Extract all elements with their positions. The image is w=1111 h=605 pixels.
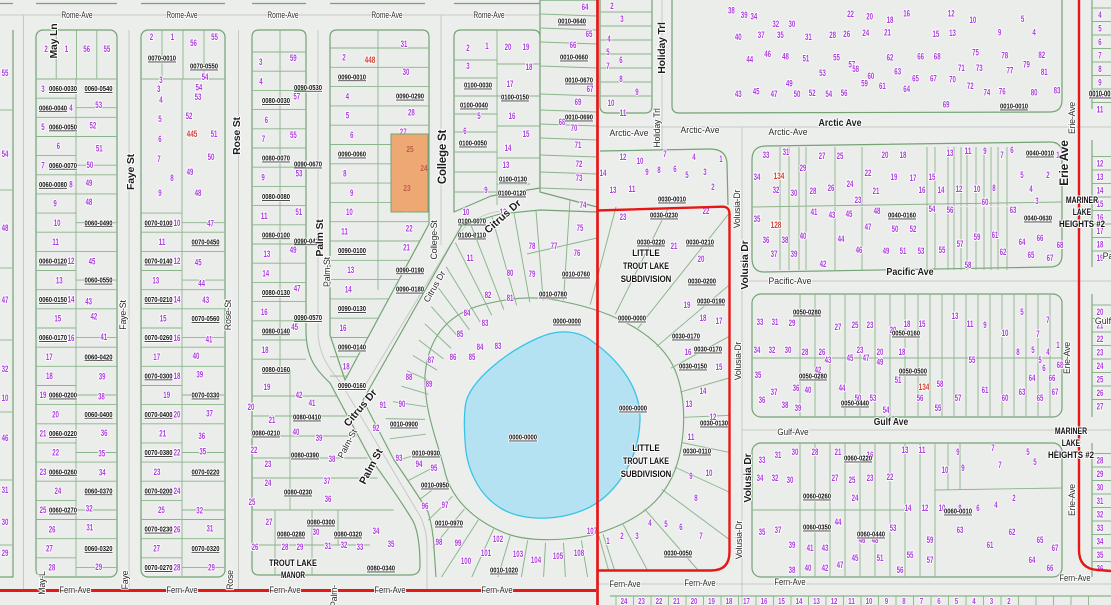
svg-text:14: 14 [174, 295, 181, 305]
svg-text:8: 8 [992, 183, 995, 193]
svg-text:81: 81 [1041, 67, 1048, 77]
svg-text:24: 24 [265, 478, 272, 488]
svg-text:4: 4 [1046, 347, 1049, 357]
svg-text:100: 100 [461, 556, 471, 566]
svg-text:23: 23 [154, 467, 161, 477]
svg-text:19: 19 [891, 172, 898, 182]
svg-text:2: 2 [342, 53, 345, 63]
svg-text:9: 9 [1098, 78, 1101, 88]
svg-text:0070-0320: 0070-0320 [192, 544, 220, 553]
svg-text:0060-0400: 0060-0400 [85, 410, 113, 419]
svg-text:25: 25 [249, 497, 256, 507]
svg-text:Faye: Faye [120, 570, 130, 589]
svg-text:35: 35 [1097, 550, 1104, 560]
svg-text:13: 13 [686, 399, 693, 409]
svg-text:7: 7 [991, 443, 994, 453]
svg-text:45: 45 [753, 86, 760, 96]
svg-text:0050-0280: 0050-0280 [799, 372, 827, 381]
svg-text:0030-0050: 0030-0050 [664, 549, 692, 558]
svg-text:62: 62 [1000, 247, 1007, 257]
svg-text:76: 76 [999, 86, 1006, 96]
svg-text:0080-0230: 0080-0230 [284, 488, 312, 497]
svg-text:48: 48 [782, 52, 789, 62]
svg-text:24: 24 [55, 486, 62, 496]
svg-text:0100-0110: 0100-0110 [458, 231, 486, 240]
svg-text:42: 42 [91, 312, 98, 322]
svg-text:21: 21 [673, 597, 680, 605]
svg-text:0080-0140: 0080-0140 [262, 326, 290, 335]
svg-text:0090-0160: 0090-0160 [338, 381, 366, 390]
svg-text:10: 10 [974, 184, 981, 194]
svg-text:48: 48 [86, 197, 93, 207]
svg-text:0080-0130: 0080-0130 [262, 288, 290, 297]
svg-text:9: 9 [983, 320, 986, 330]
svg-text:66: 66 [1049, 373, 1056, 383]
svg-text:34: 34 [99, 467, 106, 477]
svg-text:36: 36 [793, 383, 800, 393]
svg-text:0010-0950: 0010-0950 [421, 481, 449, 490]
svg-text:8: 8 [69, 180, 72, 190]
svg-text:10: 10 [706, 468, 713, 478]
svg-text:50: 50 [794, 89, 801, 99]
svg-text:SUBDIVISION: SUBDIVISION [621, 469, 672, 479]
svg-text:19: 19 [523, 42, 530, 52]
svg-text:Fern-Ave: Fern-Ave [774, 577, 805, 587]
svg-text:3: 3 [259, 57, 262, 67]
svg-text:5: 5 [1026, 447, 1029, 457]
svg-text:12: 12 [68, 256, 75, 266]
svg-text:LITTLE: LITTLE [632, 443, 660, 453]
svg-text:Fern-Ave: Fern-Ave [166, 585, 197, 595]
svg-text:Arctic-Ave: Arctic-Ave [610, 128, 649, 138]
svg-text:34: 34 [757, 473, 764, 483]
svg-text:89: 89 [426, 379, 433, 389]
svg-text:2: 2 [610, 1, 613, 11]
svg-text:36: 36 [198, 431, 205, 441]
svg-text:13: 13 [813, 597, 820, 605]
svg-text:18: 18 [726, 597, 733, 605]
svg-text:Fern-Ave: Fern-Ave [609, 579, 640, 589]
svg-text:2: 2 [466, 43, 469, 53]
svg-text:90: 90 [399, 399, 406, 409]
svg-text:39: 39 [795, 403, 802, 413]
svg-text:20: 20 [505, 42, 512, 52]
svg-text:43: 43 [829, 210, 836, 220]
svg-text:0060-0260: 0060-0260 [49, 467, 77, 476]
svg-text:0000-0000: 0000-0000 [618, 314, 646, 323]
svg-text:0040-0630: 0040-0630 [1024, 214, 1052, 223]
svg-text:0060-0550: 0060-0550 [85, 276, 113, 285]
svg-text:14: 14 [796, 597, 803, 605]
svg-text:TROUT LAKE: TROUT LAKE [623, 261, 669, 271]
svg-text:44: 44 [838, 234, 845, 244]
svg-text:51: 51 [895, 375, 902, 385]
svg-text:57: 57 [927, 555, 934, 565]
svg-text:23: 23 [867, 473, 874, 483]
svg-text:57: 57 [293, 92, 300, 102]
svg-text:37: 37 [775, 525, 782, 535]
svg-text:9: 9 [956, 447, 959, 457]
svg-text:13: 13 [610, 185, 617, 195]
svg-text:32: 32 [772, 473, 779, 483]
svg-text:64: 64 [1019, 237, 1026, 247]
svg-text:0060-0440: 0060-0440 [857, 530, 885, 539]
svg-text:31: 31 [775, 450, 782, 460]
svg-text:12: 12 [831, 597, 838, 605]
svg-text:102: 102 [493, 534, 503, 544]
svg-text:5: 5 [1038, 355, 1041, 365]
svg-text:72: 72 [576, 159, 583, 169]
svg-text:23: 23 [40, 467, 47, 477]
svg-text:0060-0270: 0060-0270 [49, 506, 77, 515]
svg-text:Rome-Ave: Rome-Ave [473, 10, 504, 20]
svg-text:55: 55 [104, 44, 111, 54]
svg-text:32: 32 [86, 504, 93, 514]
svg-text:87: 87 [428, 355, 435, 365]
svg-text:4: 4 [1029, 184, 1032, 194]
svg-text:12: 12 [948, 8, 955, 18]
svg-text:67: 67 [1052, 387, 1059, 397]
svg-text:6: 6 [1042, 363, 1045, 373]
svg-text:6: 6 [265, 115, 268, 125]
svg-text:28: 28 [812, 447, 819, 457]
svg-text:53: 53 [918, 246, 925, 256]
svg-text:9: 9 [261, 172, 264, 182]
svg-text:31: 31 [325, 541, 332, 551]
svg-text:7: 7 [1098, 51, 1101, 61]
svg-text:9: 9 [885, 597, 889, 605]
svg-text:64: 64 [582, 2, 589, 12]
svg-text:4: 4 [972, 597, 976, 605]
svg-text:16: 16 [919, 185, 926, 195]
svg-text:34: 34 [754, 345, 761, 355]
svg-text:55: 55 [935, 403, 942, 413]
svg-text:4: 4 [1032, 28, 1035, 38]
svg-text:53: 53 [296, 168, 303, 178]
svg-text:5: 5 [955, 597, 959, 605]
svg-text:39: 39 [196, 369, 203, 379]
svg-text:16: 16 [903, 8, 910, 18]
svg-text:Rome-Ave: Rome-Ave [267, 10, 298, 20]
svg-text:80: 80 [507, 268, 514, 278]
svg-text:51: 51 [803, 54, 810, 64]
svg-text:3: 3 [1035, 196, 1038, 206]
svg-text:5: 5 [158, 114, 161, 124]
svg-text:25: 25 [158, 505, 165, 515]
svg-text:32: 32 [341, 540, 348, 550]
svg-text:30: 30 [2, 517, 9, 527]
svg-text:10: 10 [2, 393, 9, 403]
svg-text:72: 72 [967, 81, 974, 91]
svg-text:HEIGHTS #2: HEIGHTS #2 [1059, 219, 1105, 229]
svg-text:57: 57 [957, 239, 964, 249]
svg-text:29: 29 [2, 548, 9, 558]
svg-text:56: 56 [841, 88, 848, 98]
svg-text:16: 16 [68, 333, 75, 343]
svg-text:0080-0320: 0080-0320 [334, 530, 362, 539]
svg-text:81: 81 [507, 293, 514, 303]
svg-text:0080-0410: 0080-0410 [293, 413, 321, 422]
svg-text:63: 63 [894, 67, 901, 77]
svg-text:53: 53 [195, 92, 202, 102]
svg-text:53: 53 [890, 523, 897, 533]
svg-text:15: 15 [716, 362, 723, 372]
svg-text:2: 2 [711, 182, 714, 192]
svg-text:19: 19 [708, 597, 715, 605]
svg-text:24: 24 [420, 163, 427, 173]
svg-text:0060-0220: 0060-0220 [49, 429, 77, 438]
svg-text:55: 55 [290, 130, 297, 140]
svg-text:18: 18 [887, 15, 894, 25]
svg-text:84: 84 [464, 308, 471, 318]
svg-text:18: 18 [899, 347, 906, 357]
svg-text:11: 11 [620, 108, 627, 118]
svg-text:21: 21 [269, 415, 276, 425]
svg-text:40: 40 [800, 231, 807, 241]
svg-text:0070-0260: 0070-0260 [145, 333, 173, 342]
svg-text:46: 46 [2, 433, 9, 443]
svg-text:34: 34 [754, 172, 761, 182]
svg-text:32: 32 [2, 364, 9, 374]
svg-text:7: 7 [41, 160, 44, 170]
svg-text:44: 44 [835, 517, 842, 527]
svg-text:21: 21 [884, 28, 891, 38]
svg-text:78: 78 [1001, 51, 1008, 61]
svg-text:80: 80 [1031, 87, 1038, 97]
svg-text:448: 448 [365, 55, 376, 65]
svg-text:11: 11 [159, 237, 166, 247]
svg-text:8: 8 [1016, 347, 1019, 357]
svg-text:24: 24 [174, 486, 181, 496]
svg-text:14: 14 [345, 284, 352, 294]
svg-text:24: 24 [862, 28, 869, 38]
svg-text:Volusia Dr: Volusia Dr [742, 453, 754, 502]
svg-text:7: 7 [1000, 150, 1003, 160]
svg-text:36: 36 [1097, 564, 1104, 574]
svg-text:31: 31 [1097, 496, 1104, 506]
svg-text:15: 15 [778, 597, 785, 605]
svg-text:68: 68 [934, 52, 941, 62]
svg-text:15: 15 [929, 172, 936, 182]
svg-text:54: 54 [196, 82, 203, 92]
svg-text:51: 51 [900, 246, 907, 256]
svg-text:47: 47 [207, 219, 214, 229]
svg-text:51: 51 [96, 144, 103, 154]
svg-text:11: 11 [848, 597, 855, 605]
svg-text:25: 25 [1097, 375, 1104, 385]
svg-text:0070-0230: 0070-0230 [145, 525, 173, 534]
svg-text:10: 10 [54, 218, 61, 228]
svg-text:Rome-Ave: Rome-Ave [61, 10, 92, 20]
svg-text:4: 4 [648, 518, 651, 528]
svg-text:7: 7 [1036, 329, 1039, 339]
svg-text:101: 101 [481, 548, 491, 558]
svg-text:103: 103 [513, 549, 523, 559]
svg-text:47: 47 [294, 284, 301, 294]
svg-text:51: 51 [877, 553, 884, 563]
svg-text:0040-0160: 0040-0160 [888, 211, 916, 220]
svg-text:0080-0160: 0080-0160 [262, 365, 290, 374]
svg-text:23: 23 [620, 212, 627, 222]
svg-text:0070-0010: 0070-0010 [148, 54, 176, 63]
svg-text:49: 49 [187, 167, 194, 177]
svg-text:49: 49 [786, 79, 793, 89]
svg-text:55: 55 [833, 53, 840, 63]
svg-text:0030-0170: 0030-0170 [694, 345, 722, 354]
svg-text:107: 107 [587, 526, 597, 536]
svg-text:22: 22 [1097, 334, 1104, 344]
svg-text:23: 23 [638, 597, 645, 605]
svg-text:0040-0010: 0040-0010 [1026, 149, 1054, 158]
svg-text:May Ln: May Ln [48, 24, 60, 59]
svg-text:60: 60 [1002, 393, 1009, 403]
svg-text:28: 28 [1097, 456, 1104, 466]
svg-text:83: 83 [1054, 85, 1061, 95]
svg-text:45: 45 [291, 322, 298, 332]
svg-text:24: 24 [1097, 361, 1104, 371]
svg-text:0070-0270: 0070-0270 [145, 563, 173, 572]
svg-text:104: 104 [531, 555, 541, 565]
svg-text:8: 8 [343, 169, 346, 179]
svg-text:0080-0030: 0080-0030 [262, 96, 290, 105]
svg-text:69: 69 [575, 97, 582, 107]
svg-text:Rome-Ave: Rome-Ave [371, 10, 402, 20]
svg-text:445: 445 [187, 129, 198, 139]
svg-text:43: 43 [85, 296, 92, 306]
svg-text:Volusia-Dr: Volusia-Dr [733, 341, 743, 380]
svg-text:6: 6 [57, 141, 60, 151]
svg-text:0010-0010: 0010-0010 [1089, 90, 1111, 99]
svg-text:85: 85 [469, 352, 476, 362]
svg-text:43: 43 [825, 355, 832, 365]
svg-text:28: 28 [282, 542, 289, 552]
svg-text:Volusia-Dr: Volusia-Dr [732, 189, 742, 228]
svg-text:4: 4 [159, 95, 162, 105]
svg-text:24: 24 [621, 597, 628, 605]
svg-text:31: 31 [86, 523, 93, 533]
svg-text:Rose: Rose [225, 570, 235, 590]
svg-text:27: 27 [46, 544, 53, 554]
svg-text:LAKE: LAKE [1073, 207, 1091, 217]
svg-text:38: 38 [782, 400, 789, 410]
svg-text:28: 28 [408, 108, 415, 118]
svg-text:51: 51 [295, 207, 302, 217]
svg-text:0000-0000: 0000-0000 [553, 317, 581, 326]
svg-text:31: 31 [783, 147, 790, 157]
svg-text:Fern-Ave: Fern-Ave [481, 585, 512, 595]
svg-text:0060-0200: 0060-0200 [49, 391, 77, 400]
svg-text:33: 33 [757, 317, 764, 327]
svg-text:26: 26 [828, 183, 835, 193]
svg-text:17: 17 [153, 352, 160, 362]
svg-text:4: 4 [692, 152, 695, 162]
svg-text:0070-0550: 0070-0550 [190, 62, 218, 71]
svg-text:0000-0000: 0000-0000 [619, 404, 647, 413]
svg-text:0100-0040: 0100-0040 [460, 101, 488, 110]
svg-text:134: 134 [774, 171, 785, 181]
svg-text:28: 28 [802, 347, 809, 357]
svg-text:0060-0490: 0060-0490 [85, 218, 113, 227]
svg-text:56: 56 [83, 44, 90, 54]
svg-text:HEIGHTS #2: HEIGHTS #2 [1048, 450, 1094, 460]
svg-text:13: 13 [264, 249, 271, 259]
svg-text:11: 11 [261, 211, 268, 221]
svg-text:1: 1 [171, 32, 174, 42]
svg-text:0060-0350: 0060-0350 [803, 523, 831, 532]
svg-text:10: 10 [970, 15, 977, 25]
svg-text:Rose St: Rose St [231, 116, 243, 154]
svg-text:22: 22 [887, 472, 894, 482]
svg-text:54: 54 [883, 405, 890, 415]
svg-text:2: 2 [1007, 597, 1011, 605]
svg-text:0060-0420: 0060-0420 [85, 352, 113, 361]
svg-text:10: 10 [637, 156, 644, 166]
svg-text:37: 37 [206, 408, 213, 418]
svg-text:45: 45 [847, 353, 854, 363]
svg-text:7: 7 [606, 61, 609, 71]
svg-text:Fern-Ave: Fern-Ave [1059, 573, 1090, 583]
svg-text:6: 6 [619, 55, 622, 65]
svg-text:Arctic-Ave: Arctic-Ave [681, 125, 720, 135]
svg-text:39: 39 [789, 540, 796, 550]
svg-text:41: 41 [100, 332, 107, 342]
svg-text:5: 5 [1033, 457, 1036, 467]
svg-text:5: 5 [1020, 307, 1023, 317]
svg-text:99: 99 [455, 538, 462, 548]
svg-text:65: 65 [1037, 535, 1044, 545]
svg-text:86: 86 [450, 352, 457, 362]
svg-text:16: 16 [174, 333, 181, 343]
svg-text:0060-0370: 0060-0370 [85, 486, 113, 495]
svg-text:0070-0100: 0070-0100 [145, 218, 173, 227]
svg-text:14: 14 [505, 143, 512, 153]
svg-text:5: 5 [1098, 24, 1101, 34]
svg-text:College St: College St [437, 130, 449, 185]
svg-text:45: 45 [846, 209, 853, 219]
svg-text:0070-0330: 0070-0330 [192, 391, 220, 400]
svg-text:10: 10 [174, 218, 181, 228]
svg-text:42: 42 [820, 259, 827, 269]
svg-text:Gulf-Ave: Gulf-Ave [777, 427, 808, 437]
svg-text:68: 68 [1057, 240, 1064, 250]
svg-text:0060-0120: 0060-0120 [39, 257, 67, 266]
svg-text:14: 14 [905, 503, 912, 513]
svg-text:0010-0760: 0010-0760 [562, 270, 590, 279]
svg-text:31: 31 [2, 485, 9, 495]
svg-text:41: 41 [206, 334, 213, 344]
svg-text:128: 128 [771, 220, 782, 230]
svg-text:53: 53 [95, 100, 102, 110]
svg-text:TROUT LAKE: TROUT LAKE [623, 456, 669, 466]
svg-text:21: 21 [159, 429, 166, 439]
svg-text:LAKE: LAKE [1062, 438, 1080, 448]
svg-text:LITTLE: LITTLE [632, 248, 660, 258]
svg-text:55: 55 [907, 550, 914, 560]
svg-text:83: 83 [495, 341, 502, 351]
svg-text:10: 10 [608, 98, 615, 108]
svg-text:66: 66 [1047, 563, 1054, 573]
svg-text:47: 47 [865, 222, 872, 232]
svg-text:3: 3 [635, 531, 638, 541]
svg-text:7: 7 [699, 531, 702, 541]
svg-text:36: 36 [101, 428, 108, 438]
svg-text:59: 59 [290, 53, 297, 63]
svg-text:29: 29 [789, 318, 796, 328]
svg-text:105: 105 [553, 551, 563, 561]
svg-text:10: 10 [1002, 328, 1009, 338]
svg-text:15: 15 [523, 129, 530, 139]
svg-text:134: 134 [919, 382, 930, 392]
